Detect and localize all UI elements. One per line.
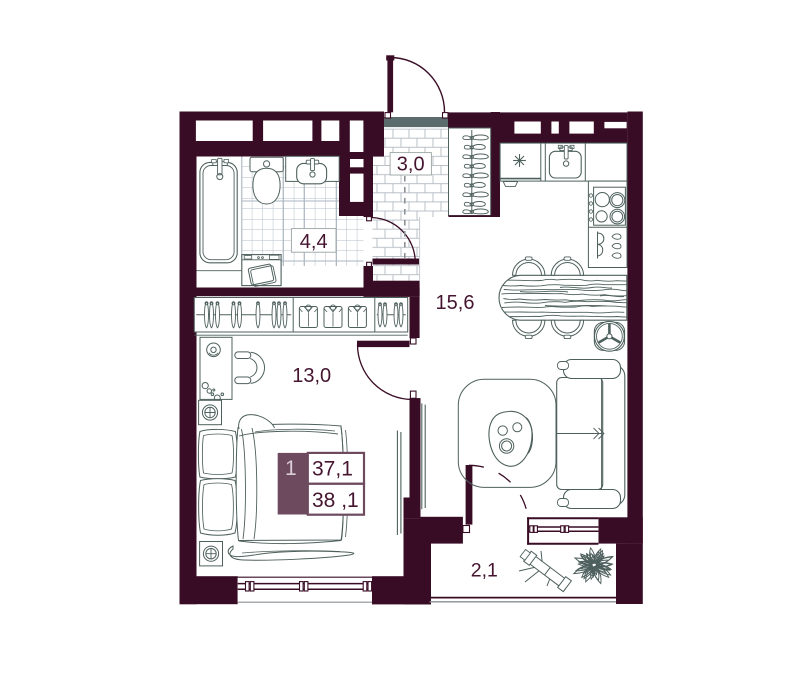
svg-text:4,4: 4,4	[300, 231, 328, 253]
svg-text:37,1: 37,1	[312, 458, 353, 481]
svg-text:3,0: 3,0	[397, 153, 425, 175]
svg-text:15,6: 15,6	[436, 292, 475, 314]
svg-text:13,0: 13,0	[292, 365, 331, 387]
svg-text:38 ,1: 38 ,1	[312, 489, 359, 512]
svg-text:2,1: 2,1	[471, 559, 498, 581]
svg-text:1: 1	[285, 457, 297, 480]
